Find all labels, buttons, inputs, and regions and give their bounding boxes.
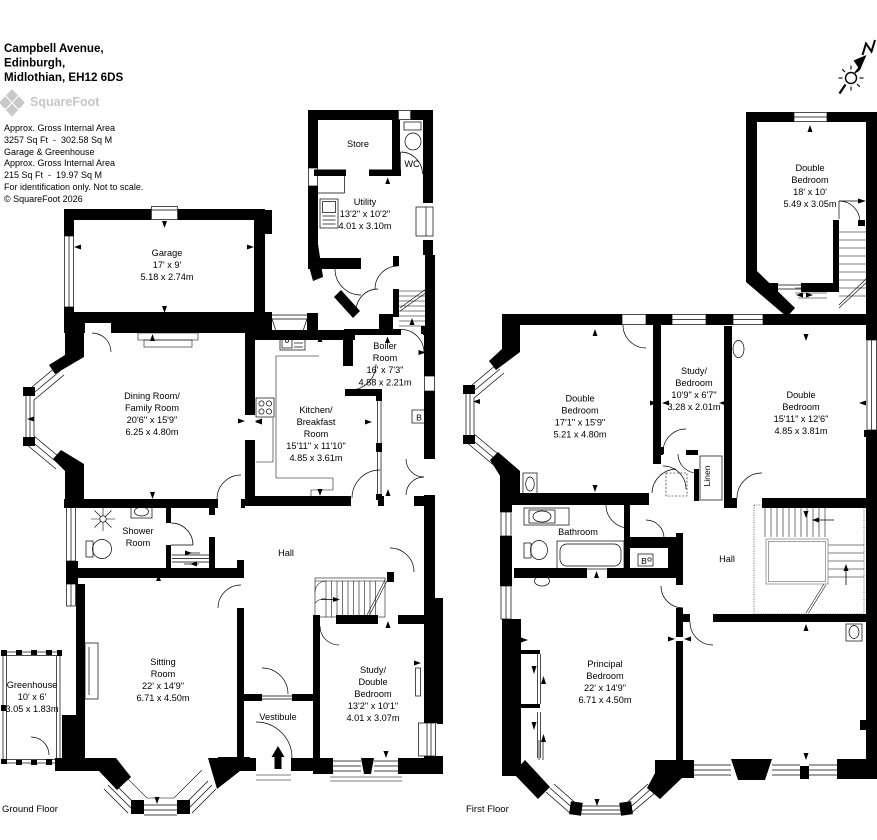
svg-text:Bedroom: Bedroom bbox=[586, 671, 624, 681]
svg-text:Vestibule: Vestibule bbox=[259, 712, 296, 722]
svg-text:4.01 x 3.10m: 4.01 x 3.10m bbox=[338, 221, 391, 231]
svg-text:15'11'' x 11'10": 15'11'' x 11'10" bbox=[286, 441, 346, 451]
svg-text:22' x 14'9": 22' x 14'9" bbox=[142, 681, 184, 691]
svg-text:10' x 6': 10' x 6' bbox=[18, 692, 47, 702]
svg-text:Double: Double bbox=[358, 677, 387, 687]
svg-text:4.85 x 3.61m: 4.85 x 3.61m bbox=[289, 453, 342, 463]
svg-text:3.05 x 1.83m: 3.05 x 1.83m bbox=[5, 704, 58, 714]
svg-text:5.21 x 4.80m: 5.21 x 4.80m bbox=[553, 430, 606, 440]
svg-text:Bedroom: Bedroom bbox=[791, 175, 829, 185]
svg-text:Hall: Hall bbox=[278, 548, 294, 558]
svg-text:Hall: Hall bbox=[719, 554, 735, 564]
svg-text:6.25 x 4.80m: 6.25 x 4.80m bbox=[125, 427, 178, 437]
svg-text:Bedroom: Bedroom bbox=[354, 689, 392, 699]
svg-text:5.18 x 2.74m: 5.18 x 2.74m bbox=[140, 272, 193, 282]
svg-text:215 Sq Ft - 19.97 Sq M: 215 Sq Ft - 19.97 Sq M bbox=[4, 170, 102, 180]
svg-text:Utility: Utility bbox=[354, 197, 377, 207]
svg-text:3257 Sq Ft - 302.58 Sq M: 3257 Sq Ft - 302.58 Sq M bbox=[4, 135, 112, 145]
svg-text:Bedroom: Bedroom bbox=[561, 406, 599, 416]
svg-text:Shower: Shower bbox=[122, 526, 153, 536]
svg-text:18' x 10': 18' x 10' bbox=[793, 187, 827, 197]
svg-text:Edinburgh,: Edinburgh, bbox=[4, 57, 65, 70]
svg-text:Approx. Gross Internal Area: Approx. Gross Internal Area bbox=[4, 123, 115, 133]
svg-text:Study/: Study/ bbox=[360, 665, 386, 675]
svg-text:Double: Double bbox=[795, 163, 824, 173]
svg-text:For identification only. Not t: For identification only. Not to scale. bbox=[4, 182, 143, 192]
svg-text:4.01 x 3.07m: 4.01 x 3.07m bbox=[346, 713, 399, 723]
svg-text:Sitting: Sitting bbox=[150, 657, 176, 667]
svg-text:3.28 x 2.01m: 3.28 x 2.01m bbox=[667, 402, 720, 412]
svg-text:Approx. Gross Internal Area: Approx. Gross Internal Area bbox=[4, 158, 115, 168]
svg-text:13'2" x 10'2": 13'2" x 10'2" bbox=[340, 209, 390, 219]
svg-text:5.49 x 3.05m: 5.49 x 3.05m bbox=[783, 199, 836, 209]
svg-text:Study/: Study/ bbox=[681, 366, 707, 376]
svg-text:Bedroom: Bedroom bbox=[782, 402, 820, 412]
svg-text:Room: Room bbox=[126, 538, 151, 548]
svg-text:Dining Room/: Dining Room/ bbox=[124, 391, 180, 401]
svg-text:Boiler: Boiler bbox=[373, 341, 397, 351]
svg-text:Kitchen/: Kitchen/ bbox=[299, 405, 333, 415]
svg-text:Room: Room bbox=[151, 669, 176, 679]
svg-text:15'11" x 12'6": 15'11" x 12'6" bbox=[774, 414, 829, 424]
svg-text:17' x 9': 17' x 9' bbox=[153, 260, 182, 270]
svg-text:Garage: Garage bbox=[152, 248, 183, 258]
svg-text:Family Room: Family Room bbox=[125, 403, 179, 413]
svg-text:13'2" x 10'1": 13'2" x 10'1" bbox=[348, 701, 398, 711]
svg-text:Ground Floor: Ground Floor bbox=[2, 804, 58, 815]
svg-text:Campbell Avenue,: Campbell Avenue, bbox=[4, 42, 104, 55]
svg-text:17'1" x 15'9": 17'1" x 15'9" bbox=[555, 418, 605, 428]
svg-text:22' x 14'9": 22' x 14'9" bbox=[584, 683, 626, 693]
svg-text:Garage & Greenhouse: Garage & Greenhouse bbox=[4, 147, 95, 157]
svg-text:Breakfast: Breakfast bbox=[297, 417, 336, 427]
svg-text:Linen: Linen bbox=[702, 465, 712, 486]
svg-text:SquareFoot: SquareFoot bbox=[30, 95, 100, 109]
svg-text:10'9" x 6'7": 10'9" x 6'7" bbox=[671, 390, 716, 400]
svg-text:Double: Double bbox=[565, 394, 594, 404]
svg-text:B: B bbox=[641, 556, 647, 566]
svg-text:4.85 x 3.81m: 4.85 x 3.81m bbox=[774, 426, 827, 436]
svg-text:20'6'' x 15'9": 20'6'' x 15'9" bbox=[127, 415, 178, 425]
svg-text:Room: Room bbox=[304, 429, 329, 439]
svg-text:First Floor: First Floor bbox=[466, 804, 509, 815]
svg-text:4.88 x 2.21m: 4.88 x 2.21m bbox=[358, 378, 411, 388]
svg-text:Bedroom: Bedroom bbox=[675, 378, 713, 388]
svg-text:Double: Double bbox=[786, 390, 815, 400]
svg-text:Store: Store bbox=[347, 139, 369, 149]
svg-text:B: B bbox=[416, 413, 422, 423]
svg-text:16' x 7'3": 16' x 7'3" bbox=[367, 365, 404, 375]
svg-text:Bathroom: Bathroom bbox=[558, 527, 598, 537]
svg-text:Room: Room bbox=[373, 353, 398, 363]
svg-text:© SquareFoot 2026: © SquareFoot 2026 bbox=[4, 194, 83, 204]
svg-text:6.71 x 4.50m: 6.71 x 4.50m bbox=[578, 695, 631, 705]
svg-text:6.71 x 4.50m: 6.71 x 4.50m bbox=[136, 693, 189, 703]
svg-text:Principal: Principal bbox=[587, 659, 622, 669]
svg-text:Greenhouse: Greenhouse bbox=[7, 680, 58, 690]
svg-text:Midlothian, EH12 6DS: Midlothian, EH12 6DS bbox=[4, 71, 123, 84]
